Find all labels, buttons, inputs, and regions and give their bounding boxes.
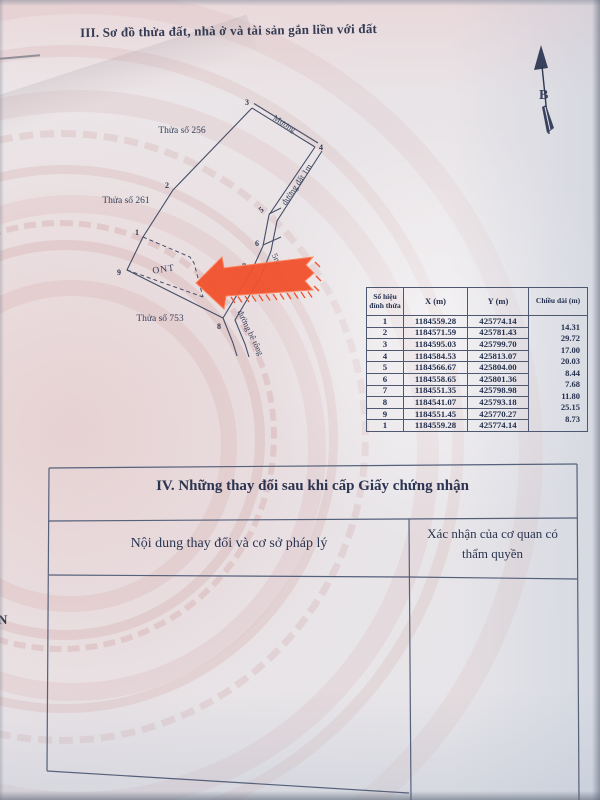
length-value: 8.73: [529, 413, 587, 425]
vertex-cell: 1: [367, 316, 404, 328]
x-cell: 1184551.35: [404, 385, 468, 397]
y-cell: 425799.70: [468, 339, 529, 351]
x-cell: 1184541.07: [404, 397, 468, 409]
s4-right-border: [577, 464, 579, 800]
x-cell: 1184559.28: [404, 420, 468, 432]
road-inner-continuation: [223, 318, 237, 356]
document-photo: III. Sơ đồ thửa đất, nhà ở và tài sản gắ…: [0, 0, 600, 800]
photo-edge-right: [592, 0, 600, 800]
section4-col1-header: Nội dung thay đổi và cơ sở pháp lý: [50, 536, 408, 552]
section4-title: IV. Những thay đổi sau khi cấp Giấy chứn…: [50, 478, 575, 495]
length-value: 17.00: [529, 344, 587, 356]
north-arrow-head: [534, 45, 548, 70]
s4-col2-underline: [409, 577, 577, 579]
vertex-4: 4: [319, 143, 323, 152]
x-cell: 1184584.53: [404, 350, 468, 362]
length-value: 8.44: [529, 367, 587, 379]
photo-edge-left: [0, 0, 4, 800]
y-cell: 425804.00: [468, 362, 529, 374]
section4-col2-header: Xác nhận của cơ quan có thẩm quyền: [410, 524, 575, 563]
y-cell: 425774.14: [468, 316, 529, 328]
vertex-5: 5: [257, 205, 265, 215]
length-value: 14.31: [529, 321, 587, 333]
section4-col2-text: Xác nhận của cơ quan có thẩm quyền: [423, 524, 563, 563]
north-arrow: B: [522, 42, 567, 142]
y-cell: 425774.14: [468, 420, 529, 432]
highlight-arrow: [196, 257, 321, 309]
vertex-cell: 7: [367, 385, 404, 397]
length-column: 14.31 29.72 17.00 20.03 8.44 7.68 11.80 …: [529, 316, 588, 432]
s4-title-underline: [49, 518, 577, 521]
length-value: 20.03: [529, 356, 587, 368]
y-cell: 425793.18: [468, 397, 529, 409]
s4-top-border: [49, 464, 577, 468]
x-cell: 1184559.28: [404, 316, 468, 328]
vertex-cell: 4: [367, 350, 404, 362]
length-header: Chiều dài (m): [529, 288, 588, 316]
y-cell: 425801.36: [468, 373, 529, 385]
length-value: 29.72: [529, 333, 587, 345]
vertex-1: 1: [135, 228, 139, 237]
y-cell: 425781.43: [468, 327, 529, 339]
vertex-cell: 9: [367, 408, 404, 420]
y-header: Y (m): [468, 288, 529, 316]
ont-label: ONT: [152, 264, 176, 277]
tick-v5: [269, 208, 281, 214]
x-cell: 1184566.67: [404, 362, 468, 374]
vertex-cell: 6: [367, 373, 404, 385]
vertex-9: 9: [117, 268, 121, 277]
vertex-cell: 5: [367, 362, 404, 374]
parcel-256-label: Thửa số 256: [158, 125, 206, 136]
vertex-header: Số hiệu đỉnh thửa: [367, 288, 404, 316]
photo-edge-bottom: [0, 791, 600, 800]
vertex-cell: 8: [367, 397, 404, 409]
s4-bottom-border: [47, 771, 409, 793]
length-value: 11.80: [529, 390, 587, 402]
x-header: X (m): [404, 288, 468, 316]
vertex-cell: 1: [367, 420, 404, 432]
y-cell: 425813.07: [468, 350, 529, 362]
x-cell: 1184595.03: [404, 339, 468, 351]
section4-table-lines: [40, 455, 585, 800]
vertex-2: 2: [165, 181, 169, 190]
north-label: B: [539, 88, 548, 103]
parcel-diagram: Thửa số 256 Thửa số 261 Thửa số 753 ONT …: [85, 80, 365, 365]
vertex-8: 8: [217, 322, 221, 331]
photo-edge-top: [0, 0, 600, 6]
canal-label: Mương: [271, 113, 298, 135]
parcel-753-label: Thửa số 753: [136, 313, 184, 324]
vertex-6: 6: [255, 239, 259, 248]
x-cell: 1184551.45: [404, 408, 468, 420]
parcel-261-label: Thửa số 261: [102, 195, 150, 206]
x-cell: 1184558.65: [404, 373, 468, 385]
coordinate-table: Số hiệu đỉnh thửa X (m) Y (m) Chiều dài …: [366, 287, 588, 432]
coord-header-row: Số hiệu đỉnh thửa X (m) Y (m) Chiều dài …: [367, 288, 588, 316]
s4-left-border: [47, 468, 49, 771]
s4-col1-underline: [49, 575, 409, 577]
coord-row: 1 1184559.28 425774.14 14.31 29.72 17.00…: [367, 316, 588, 328]
x-cell: 1184571.59: [404, 327, 468, 339]
length-value: 25.15: [529, 402, 587, 414]
vertex-cell: 3: [367, 339, 404, 351]
length-value: 7.68: [529, 379, 587, 391]
vertex-cell: 2: [367, 327, 404, 339]
vertex-3: 3: [245, 98, 249, 107]
dirt-road-label: đường đất 1m: [279, 162, 314, 207]
y-cell: 425770.27: [468, 408, 529, 420]
y-cell: 425798.98: [468, 385, 529, 397]
